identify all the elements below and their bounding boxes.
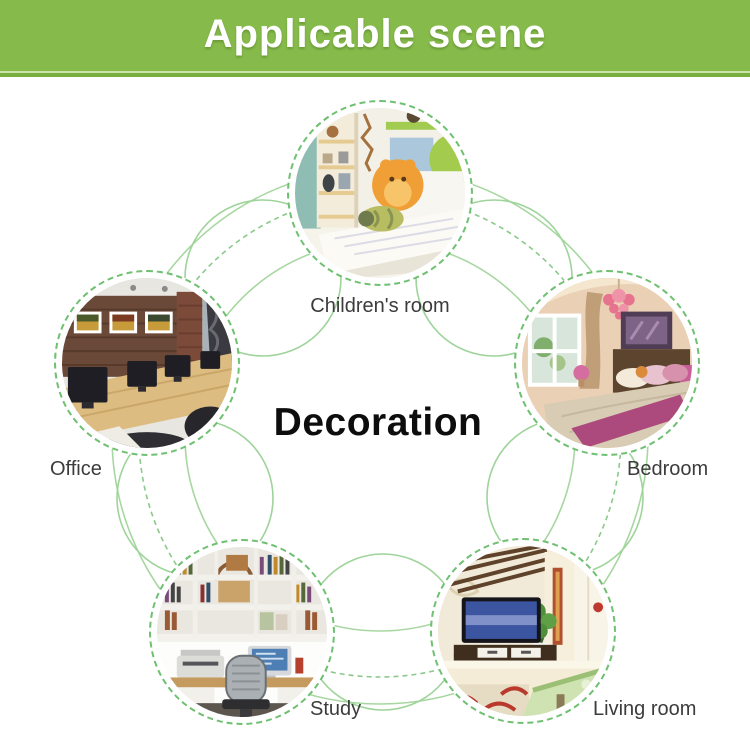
study-illustration (157, 547, 327, 717)
living-room-photo (438, 546, 608, 716)
scene-circle-childrens-room (287, 100, 473, 286)
label-office: Office (50, 459, 102, 479)
bedroom-photo (522, 278, 692, 448)
scene-circle-bedroom (514, 270, 700, 456)
applicable-scene-infographic: Applicable scene (0, 0, 750, 750)
living-room-illustration (438, 546, 608, 716)
label-bedroom: Bedroom (627, 459, 708, 479)
childrens-room-photo (295, 108, 465, 278)
office-illustration (62, 278, 232, 448)
scene-circle-office (54, 270, 240, 456)
scene-circle-study (149, 539, 335, 725)
label-childrens-room: Children's room (310, 296, 449, 316)
office-photo (62, 278, 232, 448)
bedroom-illustration (522, 278, 692, 448)
childrens-room-illustration (295, 108, 465, 278)
scene-circle-living-room (430, 538, 616, 724)
label-study: Study (310, 699, 361, 719)
center-title: Decoration (274, 403, 483, 442)
study-photo (157, 547, 327, 717)
label-living-room: Living room (593, 699, 696, 719)
